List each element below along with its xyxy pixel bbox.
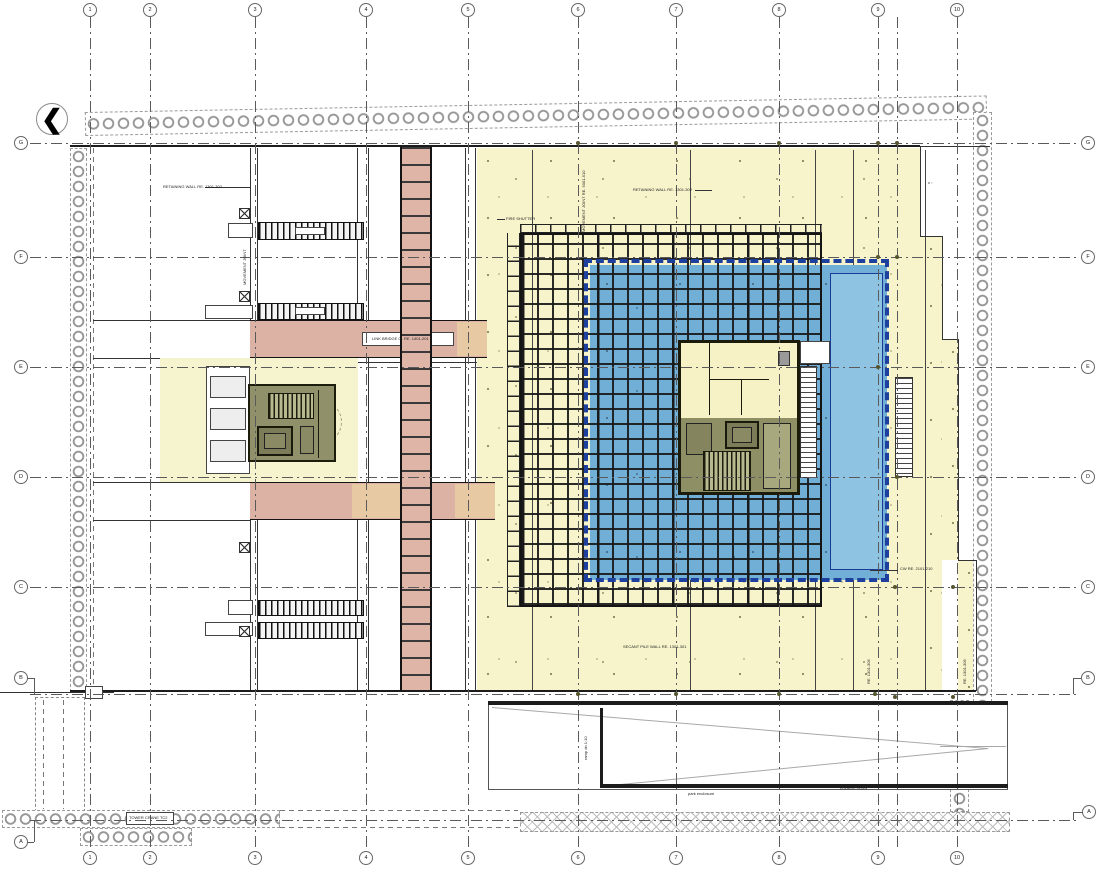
- ramp-slope-line: [940, 746, 1006, 747]
- setting-out-marker: [876, 365, 880, 369]
- grid-bubble-row-D-right: D: [1081, 470, 1095, 484]
- grid-line-row-F: [30, 257, 1078, 258]
- door-box: [228, 600, 253, 615]
- door-box: [228, 223, 253, 238]
- grid-elbow-B-right: [1073, 678, 1074, 694]
- left-core-elevator: [257, 426, 293, 456]
- door-box: [205, 305, 253, 319]
- grid-bubble-col-1-top: 1: [83, 3, 97, 17]
- grid-bubble-row-F-right: F: [1081, 250, 1095, 264]
- grid-line-col-3: [255, 17, 256, 849]
- annotation-re-note-2: RE. 1301-305: [962, 659, 967, 684]
- grid-line-row-D: [30, 477, 1078, 478]
- annotation-secant-pile-1: SECANT PILE WALL RE. 1301-301: [540, 602, 603, 607]
- plate-joint: [925, 150, 926, 690]
- grid-bubble-col-10-bottom: 10: [950, 851, 964, 865]
- shaft-wall: [368, 148, 369, 690]
- setting-out-marker: [576, 141, 580, 145]
- core-room: [300, 426, 314, 454]
- plate-step-v1: [920, 147, 921, 237]
- corridor-tan-upper: [457, 322, 487, 356]
- ramp-enclosure: [488, 703, 1008, 790]
- grid-bubble-col-3-top: 3: [248, 3, 262, 17]
- basement-wall-left: [93, 148, 94, 690]
- louvre-bar-label-box: [295, 307, 325, 315]
- grid-elbow-A-left: [34, 820, 35, 842]
- shaft-below-line: [63, 700, 64, 809]
- leader-line: [870, 570, 898, 571]
- building-top-edge: [70, 145, 920, 147]
- grid-edge-cells-left: [507, 233, 520, 607]
- room-line: [93, 520, 251, 521]
- core-partition: [318, 390, 319, 458]
- grid-bubble-row-F-left: F: [14, 250, 28, 264]
- annotation-re-note-1: RE. 1301-305: [866, 659, 871, 684]
- grid-bubble-col-3-bottom: 3: [248, 851, 262, 865]
- grid-line-col-1: [90, 17, 91, 849]
- grid-line-col-2: [150, 17, 151, 849]
- room-line: [93, 320, 251, 321]
- leader-line: [695, 190, 712, 191]
- annotation-retaining-wall-left: RETAINING WALL RE. 1301-302: [163, 184, 222, 189]
- floor-plate-step2: [942, 339, 958, 560]
- grid-bubble-col-10-top: 10: [950, 3, 964, 17]
- annotation-movement-joint-mid: MOVEMENT JOINT RE. 5001-510: [581, 171, 586, 232]
- grid-bubble-col-9-bottom: 9: [871, 851, 885, 865]
- grid-line-col-4: [366, 17, 367, 849]
- annotation-fire-shutter: FIRE SHUTTER: [506, 216, 535, 221]
- grid-bubble-row-C-right: C: [1081, 580, 1095, 594]
- grid-bubble-row-A-left: A: [14, 835, 28, 849]
- grid-bubble-col-9-top: 9: [871, 3, 885, 17]
- setting-out-marker: [777, 141, 781, 145]
- annotation-cw-note: CW RE. 2101-210: [900, 566, 932, 571]
- grid-bubble-col-1-bottom: 1: [83, 851, 97, 865]
- grid-bubble-row-E-left: E: [14, 360, 28, 374]
- grid-bubble-col-2-bottom: 2: [143, 851, 157, 865]
- annex-cell: [210, 440, 246, 462]
- shaft-below-line: [43, 700, 44, 809]
- grid-line-col-10: [957, 17, 958, 849]
- setting-out-marker: [895, 475, 899, 479]
- grid-line-row-A: [30, 820, 1078, 821]
- annotation-ramp-dn: ramp dn 1:10: [583, 736, 588, 760]
- elevator-car: [264, 433, 286, 449]
- grid-bubble-row-D-left: D: [14, 470, 28, 484]
- grid-edge-cells-top: [520, 224, 822, 233]
- annotation-setting-out: x ▫: [928, 180, 933, 185]
- grid-elbow-A-right: [1073, 812, 1074, 820]
- grid-elbow-B-left: [34, 678, 35, 694]
- floor-plate-step1: [920, 236, 942, 690]
- annotation-park-enclosure: park enclosure: [688, 791, 714, 796]
- grid-bubble-row-G-right: G: [1081, 136, 1095, 150]
- building-bottom-edge: [70, 690, 976, 692]
- grid-bubble-row-E-right: E: [1081, 360, 1095, 374]
- corridor-tan-lower-right: [455, 484, 495, 518]
- setting-out-marker: [895, 141, 899, 145]
- setting-out-marker: [674, 141, 678, 145]
- corridor-tan-lower-left: [352, 484, 400, 518]
- grid-bubble-col-8-top: 8: [772, 3, 786, 17]
- grid-line-row-C: [30, 587, 1078, 588]
- plate-step-v2: [942, 236, 943, 339]
- setting-out-marker: [876, 255, 880, 259]
- tower-outline-dashed: [584, 259, 889, 582]
- annotation-secant-pile-2: SECANT PILE WALL RE. 1301-301: [623, 644, 686, 649]
- expansion-joint-icon: [239, 626, 250, 637]
- setting-out-marker: [777, 692, 781, 696]
- shaft-wall: [475, 148, 476, 690]
- louvre-bar: [258, 622, 364, 639]
- grid-elbow-B-left: [27, 678, 34, 679]
- plate-step-h3: [958, 560, 976, 561]
- service-spine-ladder: [400, 147, 432, 690]
- pile-row-bottom-2: [80, 828, 192, 846]
- setting-out-marker: [951, 585, 955, 589]
- annotation-retaining-wall-mid: RETAINING WALL RE. 1301-302: [633, 187, 692, 192]
- grid-bubble-row-B-left: B: [14, 671, 28, 685]
- grid-bubble-row-C-left: C: [14, 580, 28, 594]
- left-core-annex: [206, 366, 250, 474]
- grid-line-row-E: [30, 367, 1078, 368]
- grid-bubble-col-2-top: 2: [143, 3, 157, 17]
- setting-out-marker: [873, 692, 877, 696]
- grid-line-col-5: [468, 17, 469, 849]
- site-step-box: [85, 686, 103, 699]
- setting-out-marker: [876, 141, 880, 145]
- north-arrow-icon: ❮: [36, 103, 68, 135]
- ramp-top-edge: [488, 701, 1008, 705]
- plate-step-h2: [942, 339, 958, 340]
- expansion-joint-icon: [239, 542, 250, 553]
- grid-elbow-A-left: [27, 842, 34, 843]
- leader-line: [497, 219, 505, 220]
- floor-plan-sheet: ❮: [0, 0, 1100, 873]
- pile-row-extension: [280, 810, 518, 811]
- plate-step-v4: [976, 560, 977, 691]
- grid-bubble-col-6-bottom: 6: [571, 851, 585, 865]
- grid-bubble-col-7-bottom: 7: [669, 851, 683, 865]
- grid-bubble-row-A-right: A: [1082, 805, 1096, 819]
- annotation-link-bridge: LINK BRIDGE 01 RE. 1401-201: [372, 336, 429, 341]
- grid-line-row-G: [30, 143, 1078, 144]
- annex-cell: [210, 408, 246, 430]
- annotation-movement-joint-left: MOVEMENT JOINT: [242, 249, 247, 285]
- left-core-stair: [268, 393, 314, 419]
- setting-out-marker: [576, 692, 580, 696]
- grid-bubble-col-5-top: 5: [461, 3, 475, 17]
- shaft-wall: [465, 148, 466, 690]
- expansion-joint-icon: [239, 208, 250, 219]
- grid-bubble-col-5-bottom: 5: [461, 851, 475, 865]
- grid-line-row-B: [30, 694, 1078, 695]
- secant-pile-wall-left: [70, 148, 87, 692]
- grid-bubble-col-6-top: 6: [571, 3, 585, 17]
- setting-out-marker: [951, 695, 955, 699]
- louvre-bar: [258, 600, 364, 616]
- room-line: [93, 482, 251, 483]
- annotation-entrance-below: entrance below: [840, 785, 867, 790]
- annotation-tower-crane: TOWER CRANE TC2: [129, 815, 168, 820]
- site-hatch-strip: [520, 812, 1010, 832]
- grid-bubble-row-B-right: B: [1081, 671, 1095, 685]
- grid-bubble-col-4-bottom: 4: [359, 851, 373, 865]
- grid-bubble-row-G-left: G: [14, 136, 28, 150]
- grid-bubble-col-7-top: 7: [669, 3, 683, 17]
- building-top-edge-right: [920, 146, 990, 147]
- setting-out-marker: [674, 692, 678, 696]
- ramp-bottom-edge: [600, 784, 1008, 788]
- expansion-joint-icon: [239, 291, 250, 302]
- grid-bubble-col-8-bottom: 8: [772, 851, 786, 865]
- plate-step-h1: [920, 236, 942, 237]
- left-core: [248, 384, 336, 462]
- secant-pile-wall-top: [85, 95, 987, 136]
- setting-out-marker: [893, 585, 897, 589]
- louvre-bar-label-box: [295, 227, 325, 235]
- setting-out-marker: [895, 255, 899, 259]
- annex-cell: [210, 376, 246, 398]
- plate-step-v3: [958, 339, 959, 560]
- pile-row-extension: [280, 827, 518, 828]
- grid-bubble-col-4-top: 4: [359, 3, 373, 17]
- ramp-left-edge: [600, 708, 603, 788]
- setting-out-marker: [893, 695, 897, 699]
